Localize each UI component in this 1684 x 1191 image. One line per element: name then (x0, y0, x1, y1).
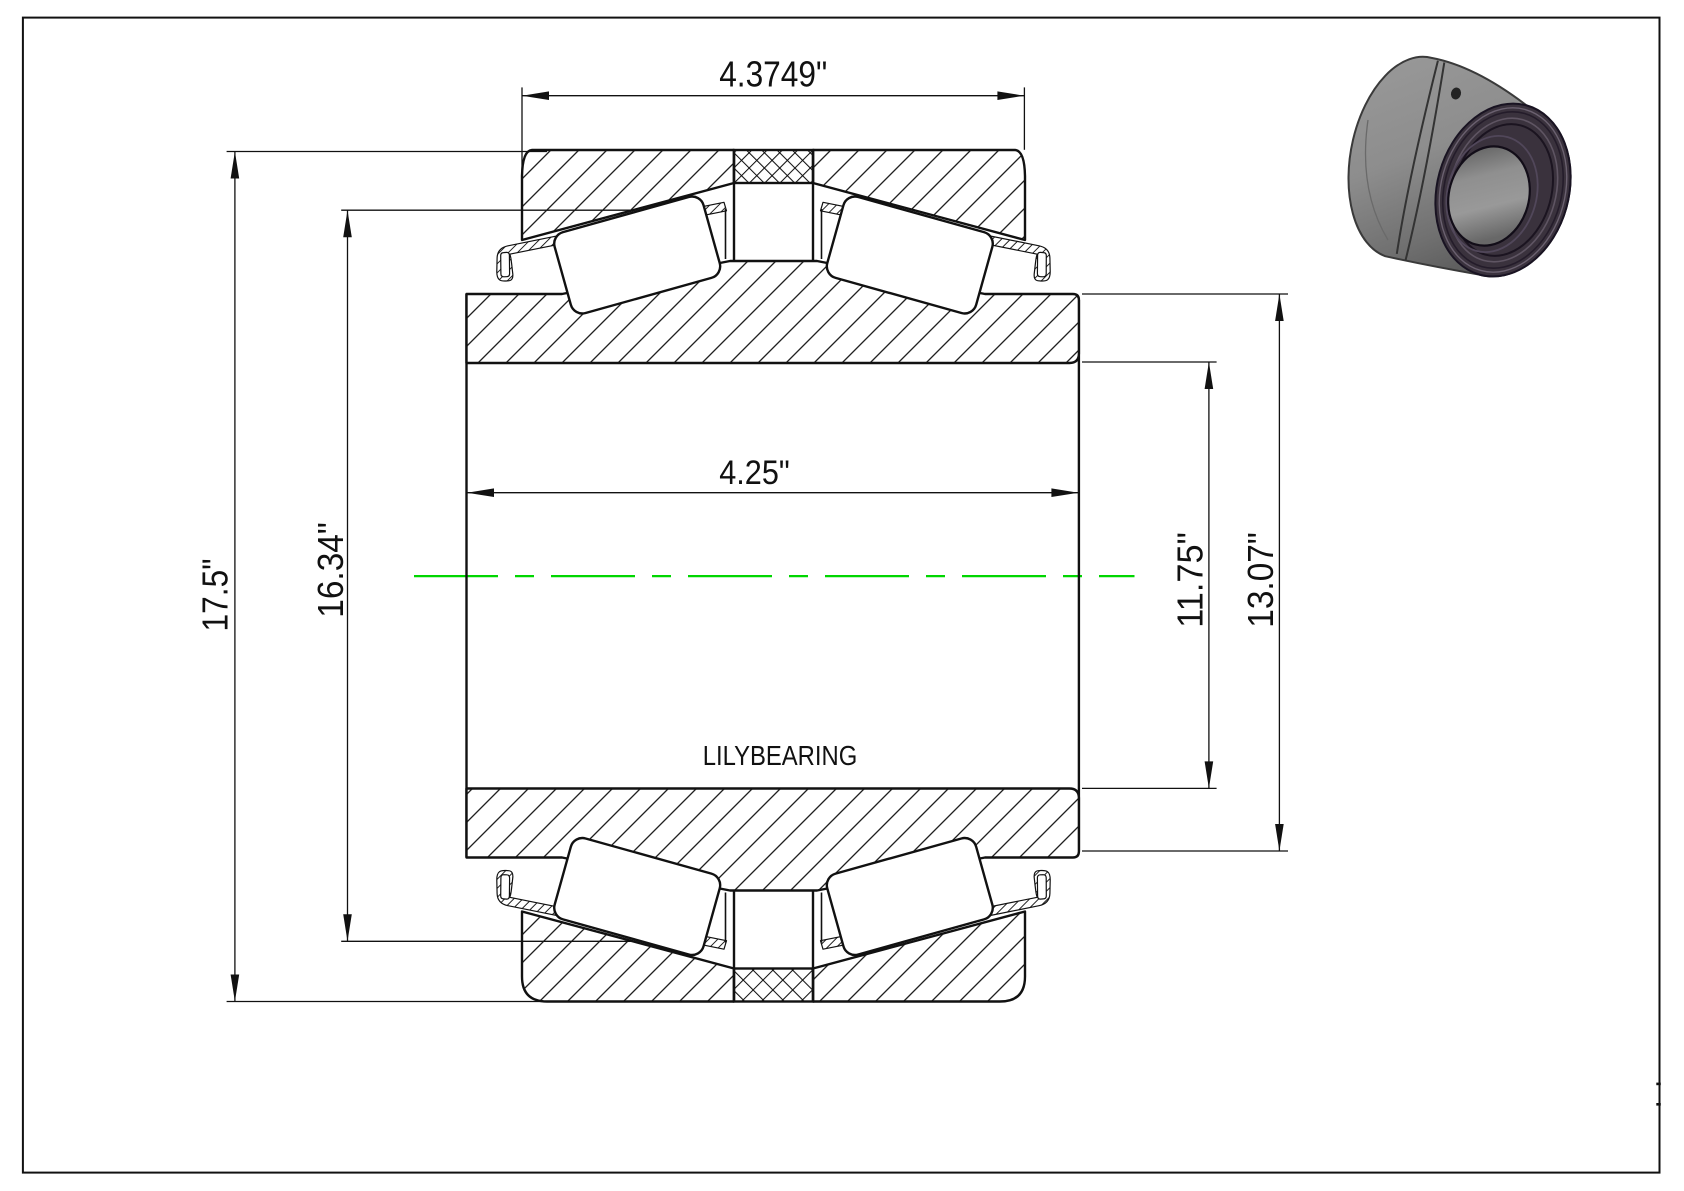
svg-text:4.3749": 4.3749" (719, 54, 827, 95)
svg-text:11.75": 11.75" (1169, 532, 1210, 628)
svg-text:4.25": 4.25" (719, 454, 790, 492)
svg-text:17.5": 17.5" (195, 559, 236, 632)
svg-text:LILYBEARING: LILYBEARING (703, 740, 858, 771)
svg-text:13.07": 13.07" (1240, 532, 1281, 628)
svg-text:16.34": 16.34" (310, 522, 351, 618)
